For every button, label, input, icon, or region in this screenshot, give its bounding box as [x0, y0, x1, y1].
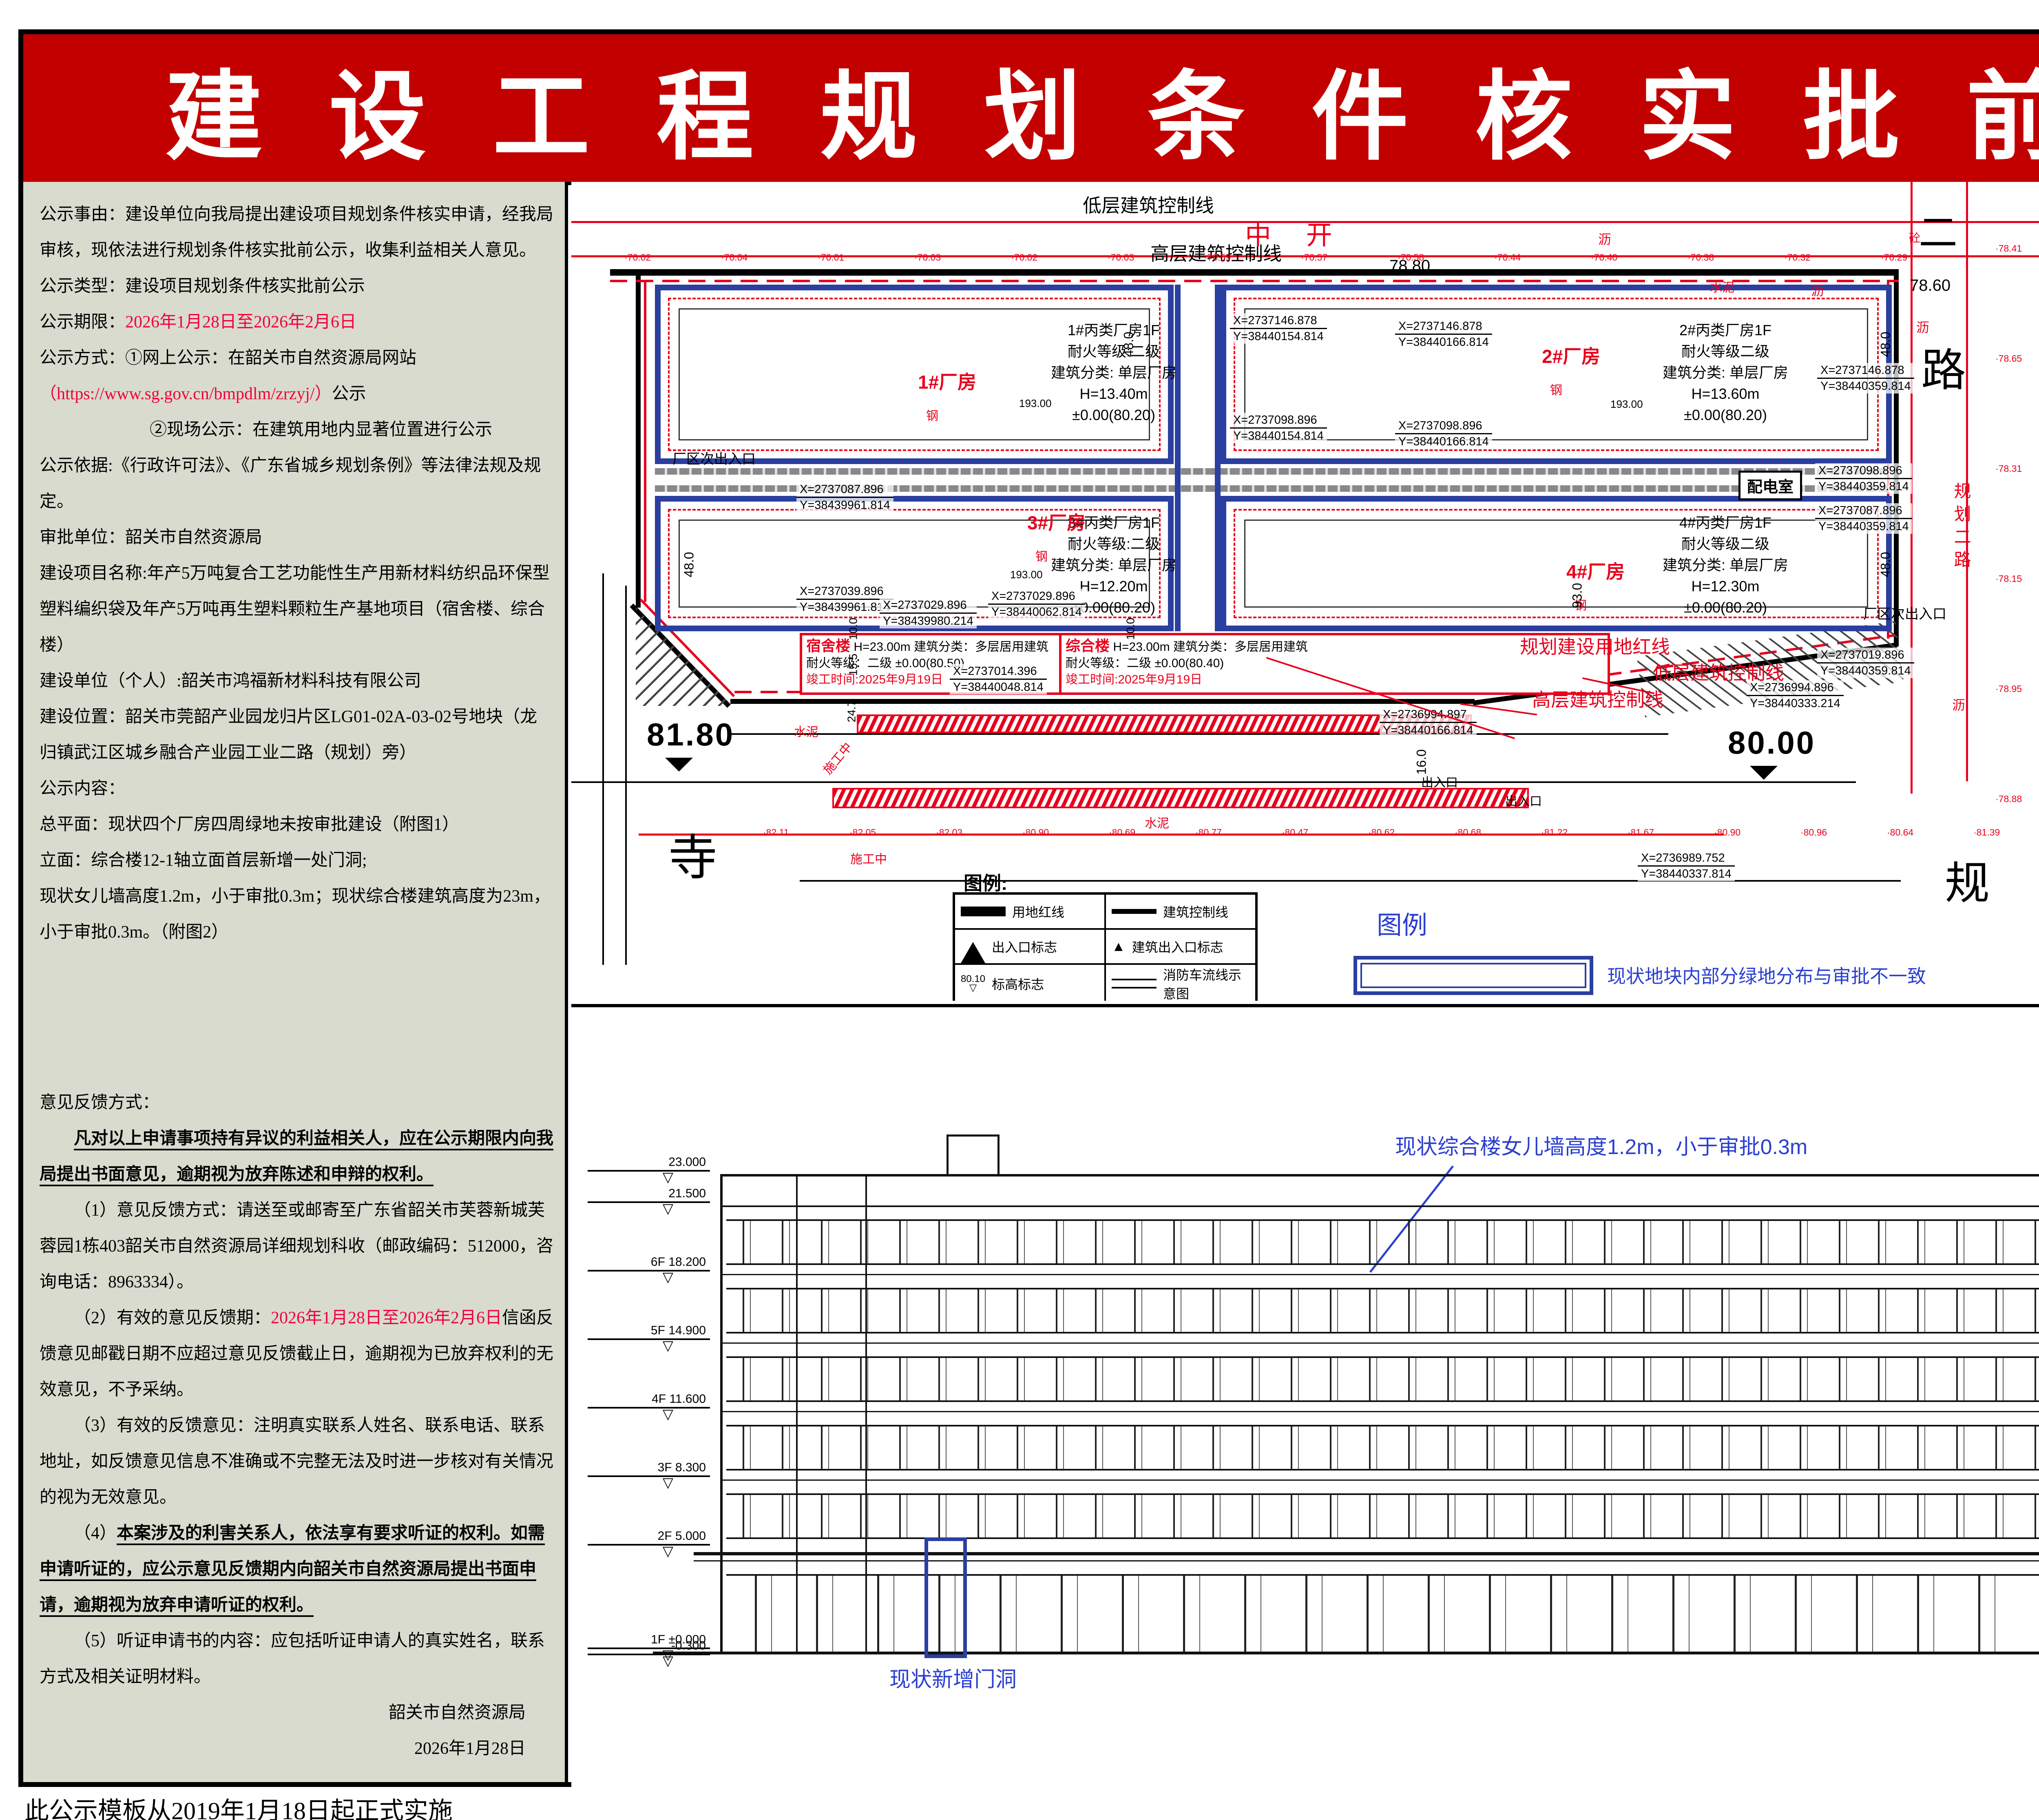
factory-annotation: 1#丙类厂房1F耐火等级:二级建筑分类: 单层厂房 H=13.40m±0.00(… [1051, 320, 1177, 426]
coordinate-label: X=2736989.752Y=38440337.814 [1638, 851, 1735, 881]
spot-elevation: ·81.22 [1541, 827, 1568, 838]
banner: 建 设 工 程 规 划 条 件 核 实 批 前 公 示 [23, 34, 2039, 185]
plan-label: 93.0 [1570, 583, 1585, 608]
level-mark: -0.300▽ [588, 1639, 710, 1655]
spot-elevation: ·80.77 [1195, 827, 1222, 838]
level-mark-icon: 80.10▽ [961, 975, 985, 993]
red-line-icon [961, 907, 1006, 916]
level-mark: 5F 14.900▽ [588, 1324, 710, 1340]
plan-label: 48.0 [1878, 332, 1893, 357]
plan-label: 10.0 [847, 618, 860, 640]
road-name-character: 规 [1945, 847, 1990, 912]
site-plan-figure1: 1#丙类厂房1F耐火等级:二级建筑分类: 单层厂房 H=13.40m±0.00(… [571, 182, 2039, 1001]
spot-elevation: ·70.32 [1784, 252, 1811, 263]
level-mark: 3F 8.300▽ [588, 1461, 710, 1477]
spot-elevation: ·80.69 [1109, 827, 1135, 838]
plan-label: 193.00 [1019, 397, 1052, 410]
spot-elevation: ·70.38 [1687, 252, 1714, 263]
spot-elevation: ·70.02 [1011, 252, 1037, 263]
spot-elevation: ·78.88 [1995, 794, 2022, 805]
plan-red-label: 低层建筑控制线 [1653, 658, 1784, 685]
road-name-character: 路 [1921, 334, 1966, 399]
spot-elevation: ·70.29 [1881, 252, 1907, 263]
coordinate-label: X=2737087.896Y=38440359.814 [1815, 503, 1912, 534]
coordinate-label: X=2737146.878Y=38440359.814 [1817, 363, 1914, 394]
spot-elevation: ·80.90 [1714, 827, 1740, 838]
plan-red-label: 高层建筑控制线 [1532, 685, 1663, 712]
factory-outline [1221, 496, 1892, 631]
spot-elevation: ·70.59 [1204, 252, 1231, 263]
plan-red-label: 水泥 [794, 722, 818, 740]
coordinate-label: X=2737014.396Y=38440048.814 [950, 664, 1047, 694]
control-line-icon [1112, 909, 1157, 914]
level-mark: 23.000▽ [588, 1155, 710, 1172]
plan-red-label: 施工中 [850, 849, 887, 867]
coordinate-label: X=2736994.897Y=38440166.814 [1380, 707, 1477, 738]
factory-name-label: 1#厂房 钢 [918, 367, 976, 424]
spot-elevation: ·82.05 [849, 827, 876, 838]
spot-elevation: ·70.01 [818, 252, 844, 263]
coordinate-label: X=2737029.896Y=38440062.814 [988, 589, 1085, 619]
building-entrance-icon: ▲ [1112, 939, 1126, 955]
plan-label: 193.00 [1010, 568, 1043, 581]
blue-note: 现状地块内部分绿地分布与审批不一致 [1607, 962, 1926, 989]
plan-red-label: 沥 [1811, 281, 1824, 299]
blue-legend-word: 图例 [1377, 904, 1427, 941]
power-room-label: 配电室 [1738, 471, 1802, 500]
plan-label: 出入口 [1421, 772, 1458, 790]
spot-elevation: ·80.68 [1455, 827, 1481, 838]
fire-lane-icon [1112, 979, 1157, 989]
plan-legend-table: 用地红线 建筑控制线 出入口标志 ▲建筑出入口标志 80.10▽标高标志 消防车… [953, 892, 1258, 1001]
level-mark: 2F 5.000▽ [588, 1529, 710, 1546]
coordinate-label: X=2737098.896Y=38440359.814 [1815, 463, 1912, 494]
notice-text-panel: 公示事由：建设单位向我局提出建设项目规划条件核实申请，经我局审核，现依法进行规划… [23, 182, 568, 1782]
plan-red-label: 规划二路 [1949, 482, 1974, 573]
new-door-note: 现状新增门洞 [889, 1662, 1017, 1693]
spot-elevation: ·80.64 [1887, 827, 1913, 838]
plan-red-label: 施工中 [818, 738, 856, 777]
plan-label: 出入口 [1505, 791, 1542, 809]
factory-name-label: 2#厂房 钢 [1542, 342, 1600, 398]
plan-label: 24.7 [845, 700, 858, 723]
coordinate-label: X=2737146.878Y=38440166.814 [1395, 319, 1492, 349]
plan-red-label: 水泥 [1710, 277, 1734, 295]
factory-annotation: 2#丙类厂房1F耐火等级二级建筑分类: 单层厂房 H=13.60m±0.00(8… [1663, 320, 1788, 426]
factory-annotation: 4#丙类厂房1F耐火等级二级建筑分类: 单层厂房 H=12.30m±0.00(8… [1663, 512, 1788, 618]
plan-label: 低层建筑控制线 [1083, 191, 1214, 218]
plan-label: 48.0 [1121, 332, 1137, 357]
plan-label: 193.00 [1610, 398, 1643, 411]
green-discrepancy-swatch [1353, 956, 1593, 995]
spot-elevation: ·70.03 [914, 252, 941, 263]
elevation-81: 81.80 [647, 716, 734, 753]
new-door-box [924, 1537, 967, 1658]
coordinate-label: X=2737098.896Y=38440166.814 [1395, 418, 1492, 449]
spot-elevation: ·78.31 [1995, 463, 2022, 474]
spot-elevation: ·80.90 [1022, 827, 1049, 838]
plan-red-label: 水泥 [1145, 813, 1169, 831]
entrance-icon [961, 930, 985, 963]
notice-sheet: 建 设 工 程 规 划 条 件 核 实 批 前 公 示 公示事由：建设单位向我局… [0, 0, 2039, 1820]
elevation-figure2: 现状综合楼女儿墙高度1.2m，小于审批0.3m 现状新增门洞 2 [571, 1004, 2039, 1790]
spot-elevation: ·78.15 [1995, 573, 2022, 584]
spot-elevation: ·81.39 [1973, 827, 2000, 838]
level-mark: 21.500▽ [588, 1187, 710, 1203]
page-title: 建 设 工 程 规 划 条 件 核 实 批 前 公 示 [165, 38, 2039, 179]
coordinate-label: X=2737039.896Y=38439961.814 [796, 584, 893, 615]
spot-elevation: ·70.58 [1398, 252, 1424, 263]
spot-elevation: ·80.62 [1368, 827, 1395, 838]
spot-elevation: ·78.65 [1995, 353, 2022, 364]
coordinate-label: X=2737146.878Y=38440154.814 [1230, 313, 1327, 344]
level-mark: 4F 11.600▽ [588, 1392, 710, 1409]
plan-label: 48.0 [1878, 552, 1893, 577]
coordinate-label: X=2737098.896Y=38440154.814 [1230, 413, 1327, 443]
plan-legend-title: 图例: [964, 869, 1007, 896]
coordinate-label: X=2737019.896Y=38440359.814 [1817, 648, 1914, 678]
plan-red-label: 沥 [1598, 229, 1611, 248]
coordinate-label: X=2737029.896Y=38439980.214 [880, 598, 977, 628]
plan-label: 78.60 [1910, 276, 1951, 295]
plan-label: 15.5 [847, 654, 860, 676]
spot-elevation: ·70.57 [1301, 252, 1327, 263]
spot-elevation: ·80.47 [1282, 827, 1308, 838]
window-row [726, 1219, 2039, 1265]
spot-elevation: ·82.11 [763, 827, 789, 838]
plan-label: 厂区次出入口 [672, 448, 756, 468]
plan-label: 10.0 [1124, 618, 1137, 640]
plan-label: 48.0 [682, 552, 697, 577]
template-footnote: 此公示模板从2019年1月18日起正式实施 [24, 1791, 453, 1820]
plan-red-label: 中 开 [1245, 215, 1346, 252]
factory-name-label: 3#厂房 钢 [1027, 508, 1086, 564]
road-name-character: 寺 [668, 818, 717, 889]
spot-elevation: ·80.96 [1800, 827, 1827, 838]
plan-label: 16.0 [1414, 749, 1429, 774]
spot-elevation: ·70.03 [1108, 252, 1134, 263]
spot-elevation: ·70.02 [624, 252, 651, 263]
spot-elevation: ·78.41 [1995, 243, 2022, 254]
plan-label: 厂区次出入口 [1863, 603, 1946, 623]
spot-elevation: ·70.40 [1591, 252, 1617, 263]
spot-elevation: ·81.67 [1628, 827, 1654, 838]
elevation-80: 80.00 [1728, 724, 1816, 761]
spot-elevation: ·70.04 [721, 252, 747, 263]
plan-red-label: 沥 [1952, 695, 1965, 714]
spot-elevation: ·82.03 [936, 827, 962, 838]
road-name-character: 二 [1919, 201, 1957, 257]
site-boundary [610, 269, 1899, 276]
spot-elevation: ·78.95 [1995, 683, 2022, 694]
parapet-note: 现状综合楼女儿墙高度1.2m，小于审批0.3m [1395, 1130, 1807, 1160]
coordinate-label: X=2737087.896Y=38439961.814 [796, 482, 893, 513]
plan-red-label: 规划建设用地红线 [1520, 632, 1670, 659]
level-mark: 6F 18.200▽ [588, 1255, 710, 1272]
spot-elevation: ·70.44 [1494, 252, 1521, 263]
